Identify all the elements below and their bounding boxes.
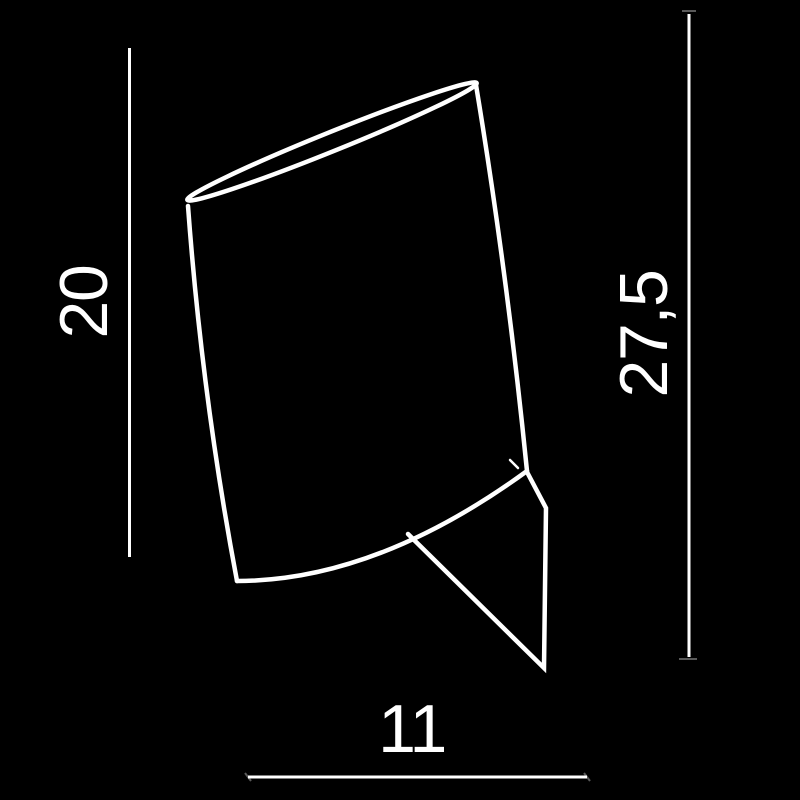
shade-right-edge	[476, 85, 527, 471]
overall-height-value: 27,5	[610, 271, 678, 398]
shade-top-rim	[184, 74, 480, 208]
lamp-line-art	[0, 0, 800, 800]
shade-height-value: 20	[50, 266, 118, 339]
bracket-foot	[408, 472, 546, 668]
shade-bracket-notch	[510, 460, 518, 468]
shade-left-edge	[188, 206, 237, 581]
lamp-shade	[184, 74, 527, 581]
shade-bottom-rim	[237, 471, 527, 581]
bracket-outline	[408, 472, 546, 668]
base-width-value: 11	[378, 695, 446, 763]
dimension-drawing-canvas: 20 27,5 11	[0, 0, 800, 800]
